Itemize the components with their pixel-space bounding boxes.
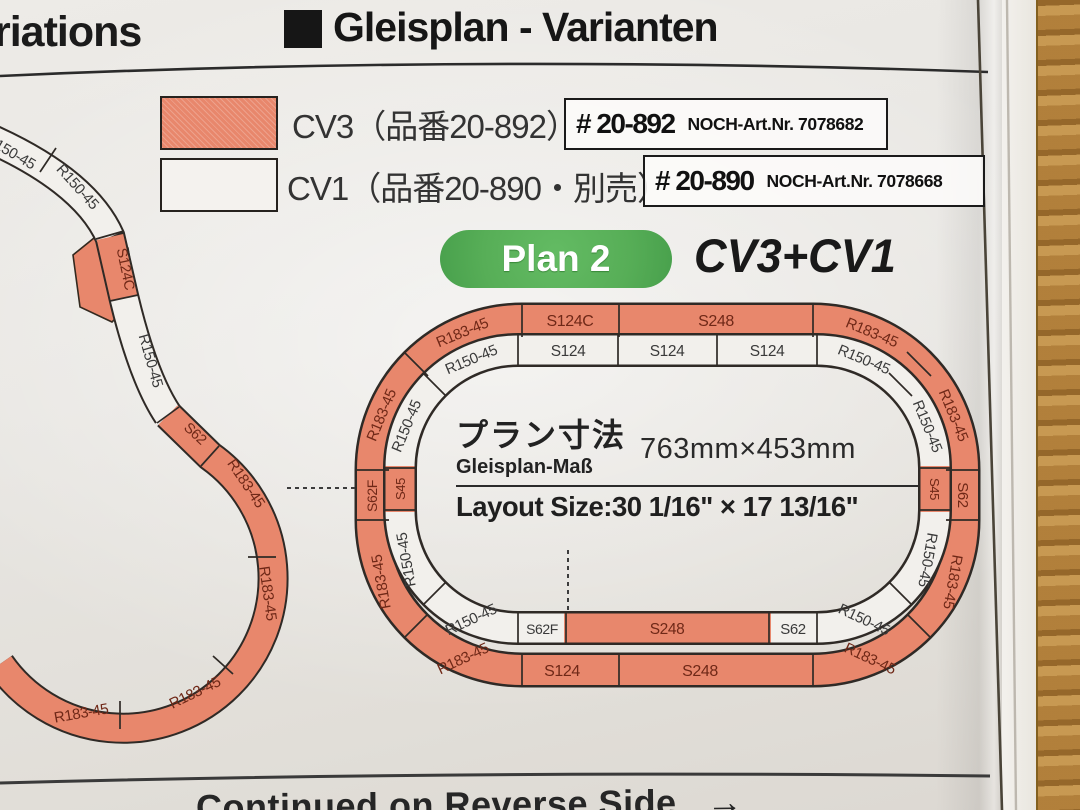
track-segment-label: S62F: [364, 480, 380, 512]
left-track-segment-labels: R150-45R150-45S124CR150-45S62R183-45R183…: [0, 131, 280, 727]
metric-dimensions: 763mm×453mm: [640, 433, 856, 466]
track-segment-label: R150-45: [835, 601, 892, 640]
track-segment-label: R150-45: [443, 601, 500, 640]
noch-article-number-cv1: NOCH-Art.Nr. 7078668: [767, 171, 943, 192]
left-track-diagram: R150-45R150-45S124CR150-45S62R183-45R183…: [0, 131, 280, 729]
plan-badge-label: Plan 2: [502, 238, 611, 280]
part-number-box-cv1: # 20-890 NOCH-Art.Nr. 7078668: [643, 155, 985, 207]
legend-label-cv1: CV1（品番20-890・別売）: [287, 162, 669, 210]
page-curl-shading: [936, 0, 1002, 810]
track-segment-label: R183-45: [843, 315, 900, 352]
dimensions-title-japanese: プラン寸法: [456, 419, 626, 453]
header-rule: [0, 64, 988, 76]
rerailer-platform: [73, 234, 136, 322]
track-segment-label: R150-45: [389, 398, 426, 455]
track-segment-label: S124: [750, 343, 785, 360]
track-segment-label: R183-45: [53, 700, 110, 726]
imperial-dimensions: Layout Size:30 1/16" × 17 13/16": [456, 491, 918, 523]
track-segment-label: S62: [180, 420, 209, 449]
dimensions-divider: [456, 485, 918, 488]
track-segment-label: R183-45: [364, 387, 401, 444]
track-segment-label: R183-45: [223, 456, 268, 511]
footer-text: Continued on Reverse Side: [196, 782, 677, 810]
track-segment-label: R183-45: [167, 673, 224, 712]
track-segment-label: R183-45: [435, 640, 492, 679]
track-segment-label: S124C: [547, 313, 594, 330]
track-segment-label: R183-45: [255, 565, 279, 622]
track-segment-label: S62: [780, 621, 806, 638]
legend-swatch-cv1: [160, 158, 278, 212]
footer-rule: [0, 774, 990, 783]
track-segment-label: R183-45: [841, 640, 898, 679]
track-segment-label: S45: [393, 478, 408, 500]
part-number-box-cv3: # 20-892 NOCH-Art.Nr. 7078682: [564, 98, 888, 150]
right-arrow-icon: →: [706, 781, 743, 810]
plan-set-combination: CV3+CV1: [694, 228, 896, 283]
plan-dimensions-block: プラン寸法 Gleisplan-Maß 763mm×453mm Layout S…: [456, 419, 918, 523]
photographed-track-plan-sheet: R150-45R150-45S124CR150-45S62R183-45R183…: [0, 0, 1080, 810]
noch-article-number-cv3: NOCH-Art.Nr. 7078682: [688, 114, 864, 135]
track-segment-label: R183-45: [368, 553, 394, 610]
track-segment-label: S124: [544, 663, 580, 680]
track-segment-label: R150-45: [135, 332, 166, 389]
track-segment-label: S124C: [113, 247, 137, 292]
page-title: Gleisplan - Varianten: [333, 4, 718, 51]
track-segment-label: R150-45: [835, 342, 892, 379]
wood-table-edge: [1036, 0, 1080, 810]
clipped-variations-title: riations: [0, 8, 141, 57]
track-segment-label: S124: [650, 343, 685, 360]
legend-label-cv3: CV3（品番20-892）: [292, 100, 578, 148]
track-segment-label: R183-45: [434, 314, 491, 351]
track-segment-label: S248: [682, 663, 718, 680]
page-edge-strip: [1002, 0, 1036, 810]
part-number-cv1: # 20-890: [655, 165, 754, 197]
continued-on-reverse-note: Continued on Reverse Side→: [196, 781, 744, 810]
track-segment-label: S124: [551, 343, 586, 360]
track-segment-label: R150-45: [0, 131, 38, 173]
part-number-cv3: # 20-892: [576, 108, 675, 140]
track-segment-label: R150-45: [393, 531, 419, 588]
track-segment-label: R150-45: [53, 161, 102, 213]
track-segment-label: S248: [698, 313, 734, 330]
header-square-bullet: [284, 10, 322, 48]
track-segment-label: S248: [650, 621, 685, 638]
legend-swatch-cv3: [160, 96, 278, 150]
track-segment-label: S62F: [526, 621, 558, 637]
plan-number-badge: Plan 2: [440, 230, 672, 288]
track-segment-label: R150-45: [443, 341, 500, 378]
dimensions-title-german: Gleisplan-Maß: [456, 456, 626, 479]
left-track-joint-ticks: [40, 148, 276, 729]
